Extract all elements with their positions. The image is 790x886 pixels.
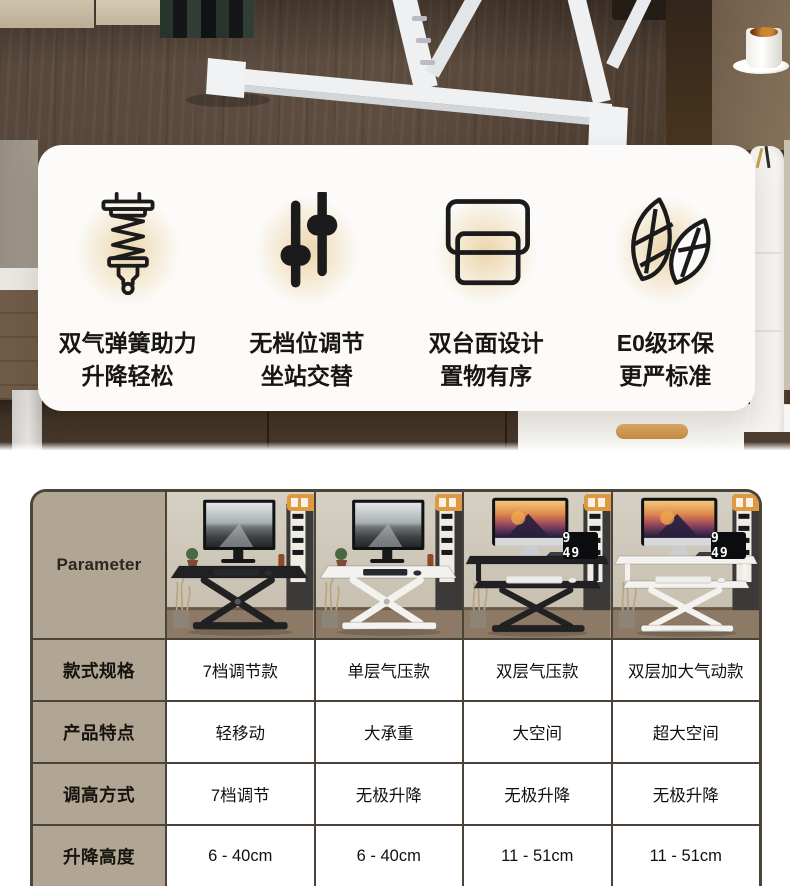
feature-title: 双台面设计: [429, 327, 544, 360]
photo-bottom-fade: [0, 442, 790, 452]
feature-value: 大承重: [314, 700, 463, 762]
style-value: 7档调节款: [165, 638, 314, 700]
watermark-tag: [287, 494, 314, 511]
feature-item-stepless-adjust: 无档位调节 坐站交替: [249, 185, 364, 393]
dual-desktop-icon: [438, 192, 534, 296]
baseboard: [0, 268, 38, 292]
row-label-feature: 产品特点: [33, 700, 165, 762]
wood-floor: [0, 290, 38, 402]
adjust-value: 无极升降: [314, 762, 463, 824]
cart-seam: [752, 252, 782, 254]
row-label-adjust: 调高方式: [33, 762, 165, 824]
right-wall: [784, 140, 790, 390]
parameter-table: Parameter 9 49 9 49 款式规格 7档调节款 单层气压款 双层气…: [30, 489, 762, 886]
product-photo-4: 9 49: [611, 492, 760, 638]
beige-box: [0, 0, 94, 28]
watermark-tag: [584, 494, 611, 511]
flip-clock: 9 49: [563, 532, 598, 559]
feature-item-dual-desktop: 双台面设计 置物有序: [429, 185, 544, 393]
range-value: 11 - 51cm: [462, 824, 611, 886]
adjust-value: 7档调节: [165, 762, 314, 824]
range-value: 11 - 51cm: [611, 824, 760, 886]
gas-spring-icon: [80, 192, 176, 296]
feature-title: 无档位调节: [249, 327, 364, 360]
watermark-tag: [732, 494, 759, 511]
feature-subtitle: 置物有序: [429, 360, 544, 393]
desk-surface-right: [712, 0, 790, 150]
flip-clock: 9 49: [711, 532, 746, 559]
watermark-tag: [435, 494, 462, 511]
style-value: 单层气压款: [314, 638, 463, 700]
feature-value: 轻移动: [165, 700, 314, 762]
table-header-parameter: Parameter: [33, 492, 165, 638]
drawer-handle: [616, 424, 688, 439]
range-value: 6 - 40cm: [165, 824, 314, 886]
rolling-cart: [750, 146, 784, 438]
product-photo-3: 9 49: [462, 492, 611, 638]
feature-item-gas-spring: 双气弹簧助力 升降轻松: [59, 185, 197, 393]
row-label-range: 升降高度: [33, 824, 165, 886]
feature-value: 大空间: [462, 700, 611, 762]
feature-title: 双气弹簧助力: [59, 327, 197, 360]
hero-photo: 双气弹簧助力 升降轻松 无档位调节 坐站交替: [0, 0, 790, 452]
background-wall: [0, 140, 38, 270]
adjust-value: 无极升降: [611, 762, 760, 824]
product-photo-2: [314, 492, 463, 638]
feature-subtitle: 坐站交替: [249, 360, 364, 393]
feature-value: 超大空间: [611, 700, 760, 762]
style-value: 双层加大气动款: [611, 638, 760, 700]
feature-subtitle: 更严标准: [617, 360, 714, 393]
feature-card: 双气弹簧助力 升降轻松 无档位调节 坐站交替: [38, 145, 755, 411]
slider-adjust-icon: [259, 192, 355, 296]
range-value: 6 - 40cm: [314, 824, 463, 886]
feature-item-eco: E0级环保 更严标准: [609, 185, 721, 393]
style-value: 双层气压款: [462, 638, 611, 700]
adjust-value: 无极升降: [462, 762, 611, 824]
cart-seam: [752, 330, 782, 332]
eco-leaf-icon: [617, 192, 713, 296]
row-label-style: 款式规格: [33, 638, 165, 700]
feature-title: E0级环保: [617, 327, 714, 360]
product-photo-1: [165, 492, 314, 638]
feature-subtitle: 升降轻松: [59, 360, 197, 393]
coffee-liquid: [750, 27, 778, 37]
